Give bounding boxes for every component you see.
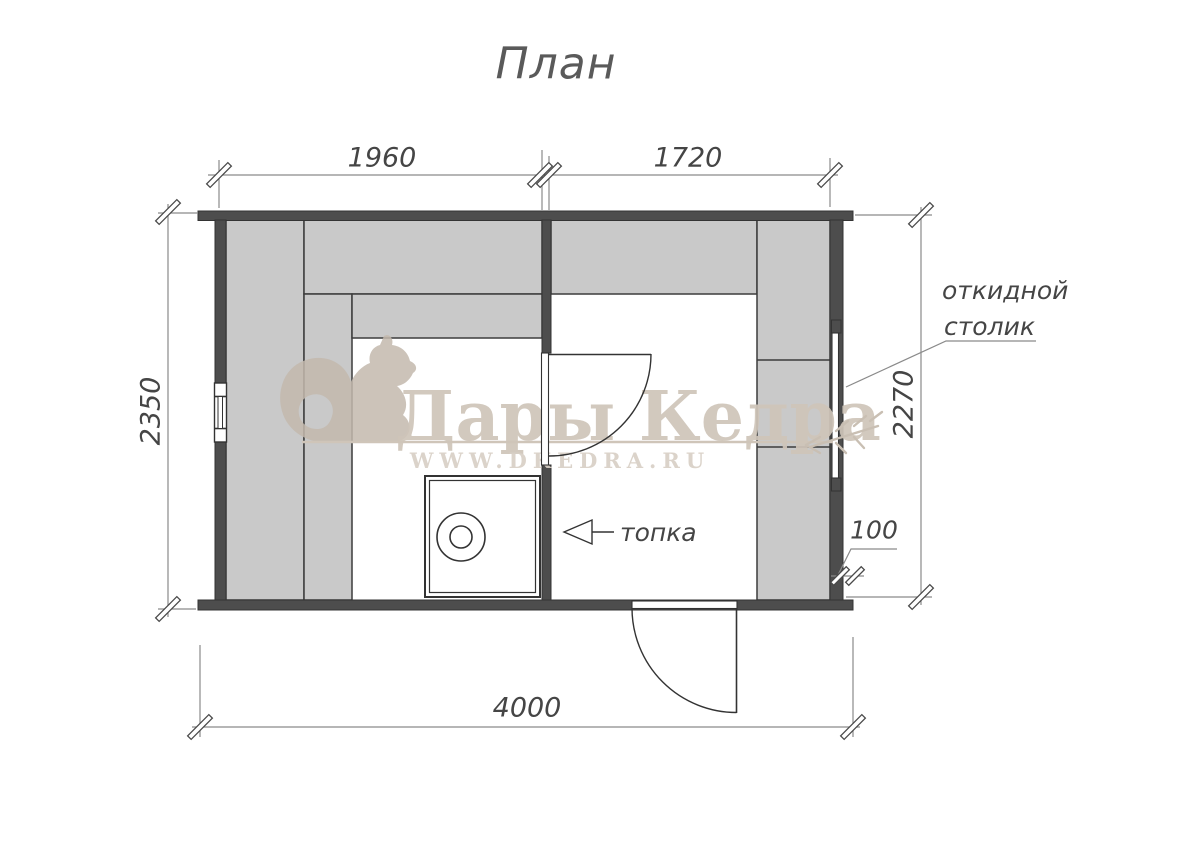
bench-top-left-room <box>304 220 542 294</box>
door-exterior <box>632 601 737 713</box>
firebox-arrow <box>564 520 614 544</box>
window-glazing <box>218 397 223 429</box>
door-exterior-swing-arc <box>632 608 737 713</box>
dim-label-top-right: 1720 <box>654 143 723 174</box>
table-mount-block-bottom <box>832 478 842 491</box>
folding-table-label-line2: столик <box>944 312 1035 341</box>
watermark-url-text: WWW.DKEDRA.RU <box>409 448 710 473</box>
dim-label-top-left: 1960 <box>348 143 417 174</box>
dim-label-bottom: 4000 <box>493 693 562 724</box>
page-title: План <box>496 39 617 90</box>
wall-top <box>198 211 853 221</box>
door-interior-jamb <box>542 353 549 465</box>
bench-middle-column <box>304 294 352 600</box>
table-mount-block-top <box>832 320 842 333</box>
dim-label-offset: 100 <box>850 516 898 545</box>
wall-partition-lower <box>542 465 551 600</box>
wall-partition-upper <box>542 220 551 353</box>
stove <box>425 476 540 597</box>
arrow-left-icon <box>564 520 592 544</box>
wall-bottom <box>198 600 853 610</box>
dim-label-left: 2350 <box>136 377 167 446</box>
door-exterior-threshold <box>632 601 737 609</box>
window-left-wall <box>215 383 227 442</box>
stove-inner <box>430 481 536 593</box>
firebox-label: топка <box>620 518 697 547</box>
bench-step-left-room <box>352 294 542 338</box>
bench-top-right-room <box>551 220 757 294</box>
plan-svg: Дары Кедра WWW.DKEDRA.RU <box>0 0 1200 848</box>
floor-plan-drawing: Дары Кедра WWW.DKEDRA.RU <box>0 0 1200 848</box>
folding-table-label-line1: откидной <box>942 276 1068 305</box>
dim-label-right: 2270 <box>889 370 920 439</box>
